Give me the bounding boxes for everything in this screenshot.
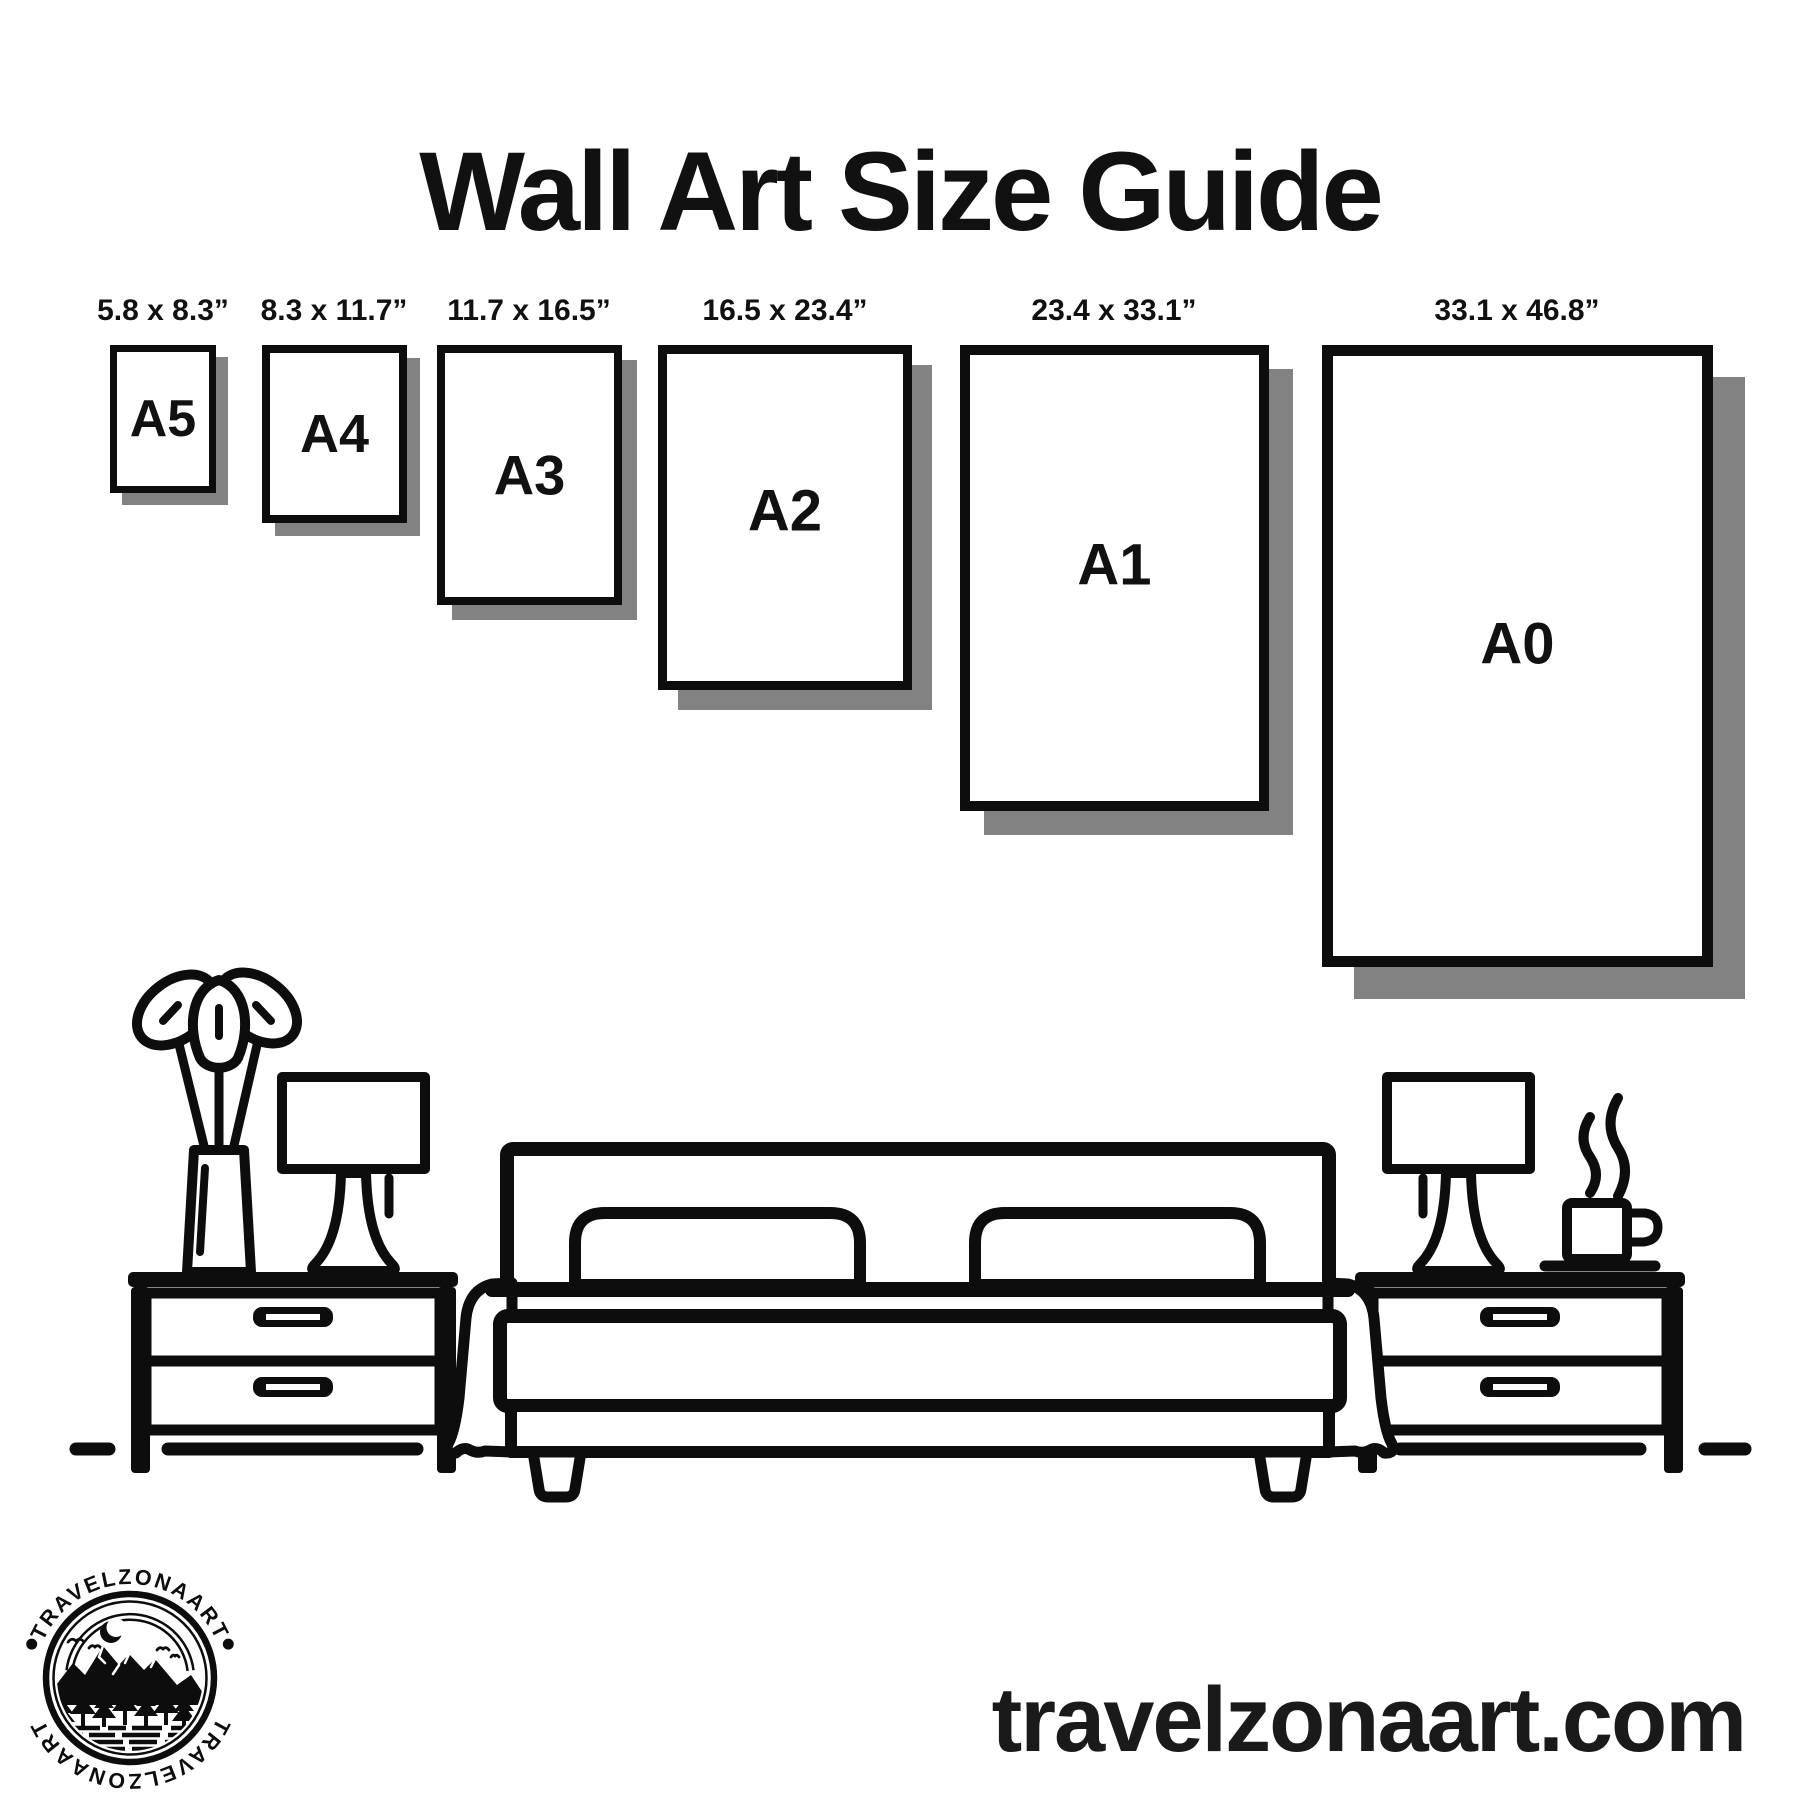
coffee-cup-icon [1545, 1098, 1658, 1266]
frame-code-a1: A1 [1077, 531, 1151, 598]
poster-frame-a2: A2 [658, 345, 912, 690]
size-label-a3: 11.7 x 16.5” [447, 294, 610, 328]
logo-dot-left [26, 1639, 37, 1650]
poster-frame-a3: A3 [437, 345, 622, 605]
table-lamp-right-icon [1387, 1077, 1530, 1271]
size-label-a1: 23.4 x 33.1” [1031, 294, 1196, 328]
pillow-left [575, 1213, 860, 1285]
logo-dot-right [223, 1639, 234, 1650]
steam-icon [1584, 1098, 1626, 1196]
pillow-right [975, 1213, 1260, 1285]
bed-base [511, 1406, 1329, 1452]
frame-code-a5: A5 [130, 389, 196, 449]
frame-code-a3: A3 [494, 443, 566, 508]
poster-frame-a4: A4 [262, 345, 407, 523]
size-label-a2: 16.5 x 23.4” [702, 294, 867, 328]
frame-code-a2: A2 [748, 477, 822, 544]
bed-icon [447, 1149, 1393, 1497]
bed-leg-left [533, 1452, 581, 1497]
poster-frame-a1: A1 [960, 345, 1269, 811]
frame-code-a0: A0 [1480, 611, 1554, 678]
table-lamp-left-icon [282, 1077, 425, 1271]
wall-art-size-guide-poster: Wall Art Size Guide 5.8 x 8.3” 8.3 x 11.… [0, 0, 1800, 1800]
bed-leg-right [1259, 1452, 1307, 1497]
size-label-a5: 5.8 x 8.3” [97, 294, 229, 328]
website-url: travelzonaart.com [992, 1668, 1745, 1773]
bedroom-illustration [0, 860, 1800, 1505]
size-label-a0: 33.1 x 46.8” [1434, 294, 1599, 328]
poster-frame-a5: A5 [110, 345, 216, 493]
size-label-a4: 8.3 x 11.7” [261, 294, 408, 328]
frame-code-a4: A4 [300, 403, 369, 465]
page-title: Wall Art Size Guide [0, 127, 1800, 256]
logo-badge: TRAVELZONAART TRAVELZONAART [5, 1553, 255, 1800]
duvet [500, 1316, 1340, 1406]
